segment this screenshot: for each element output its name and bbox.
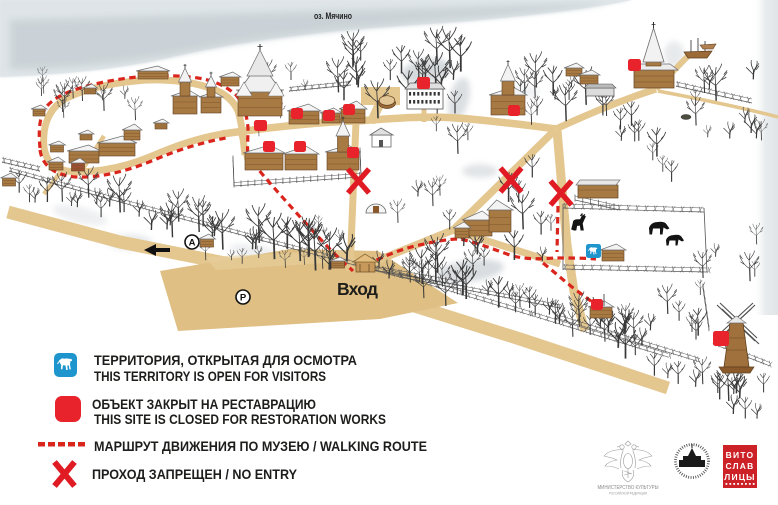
svg-text:THIS TERRITORY IS OPEN FOR VIS: THIS TERRITORY IS OPEN FOR VISITORS: [94, 368, 326, 384]
svg-text:МАРШРУТ ДВИЖЕНИЯ ПО МУЗЕЮ / WA: МАРШРУТ ДВИЖЕНИЯ ПО МУЗЕЮ / WALKING ROUT…: [94, 438, 427, 454]
svg-text:А: А: [189, 238, 196, 249]
svg-text:ОБЪЕКТ ЗАКРЫТ НА РЕСТАВРАЦИЮ: ОБЪЕКТ ЗАКРЫТ НА РЕСТАВРАЦИЮ: [92, 396, 316, 412]
svg-text:РОССИЙСКОЙ ФЕДЕРАЦИИ: РОССИЙСКОЙ ФЕДЕРАЦИИ: [609, 492, 648, 496]
svg-text:ПРОХОД ЗАПРЕЩЕН / NO ENTRY: ПРОХОД ЗАПРЕЩЕН / NO ENTRY: [92, 466, 298, 482]
svg-text:оз. Мячино: оз. Мячино: [314, 11, 352, 22]
svg-text:Р: Р: [240, 293, 247, 304]
svg-text:Вход: Вход: [337, 279, 378, 299]
svg-text:МИНИСТЕРСТВО КУЛЬТУРЫ: МИНИСТЕРСТВО КУЛЬТУРЫ: [598, 485, 660, 491]
svg-text:ТЕРРИТОРИЯ, ОТКРЫТАЯ ДЛЯ ОСМОТ: ТЕРРИТОРИЯ, ОТКРЫТАЯ ДЛЯ ОСМОТРА: [94, 352, 357, 368]
svg-text:СЛАВ: СЛАВ: [726, 461, 755, 471]
svg-text:ВИТО: ВИТО: [726, 450, 755, 460]
svg-text:ЛИЦЫ: ЛИЦЫ: [724, 472, 755, 482]
svg-text:THIS SITE IS CLOSED FOR RESTOR: THIS SITE IS CLOSED FOR RESTORATION WORK…: [94, 411, 386, 427]
